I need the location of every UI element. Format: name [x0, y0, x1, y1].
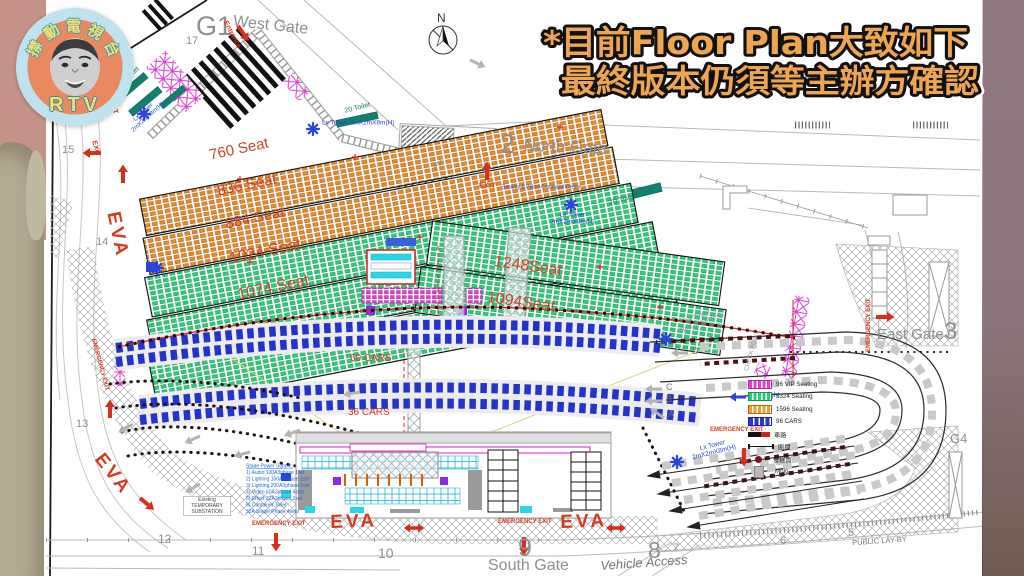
queue-letter-c: C — [666, 383, 673, 392]
legend-swatch-cone — [755, 456, 762, 463]
lx-tower-label-3: Lx Tower2mX2mX8m(H) — [550, 212, 595, 226]
parking-36cars: 36 CARS — [348, 408, 390, 419]
queue-letter-a: A — [668, 410, 674, 419]
logo-char-3: 電 — [66, 15, 81, 36]
tv-screenshot-frame: G1 West Gate 2 North Gate East Gate 3 So… — [0, 0, 1024, 576]
logo-face-image — [45, 35, 105, 99]
parking-60cars: 60 CARS — [350, 354, 392, 365]
road-number-5: 5 — [848, 528, 854, 540]
road-number-7: 7 — [673, 543, 679, 555]
road-number-10: 10 — [378, 546, 394, 561]
command-center-label: Security & Police Command Center — [502, 185, 581, 190]
legend-swatch-orange-seating — [748, 405, 772, 414]
road-number-12: 12 — [158, 533, 171, 546]
legend-row-fence: 圍欄 — [748, 441, 858, 454]
legend-swatch-green-seating — [748, 392, 772, 401]
legend-row-orange: 1596 Seating — [748, 403, 858, 416]
queue-letter-b: B — [666, 395, 672, 404]
legend-swatch-fence — [748, 444, 774, 449]
legend-swatch-mojo — [754, 466, 764, 478]
logo-abbr: RTV — [49, 94, 101, 117]
exit-label-north: EXIT — [479, 182, 496, 190]
emergency-exit-east: EMERGENCY EXIT — [866, 298, 872, 352]
legend-row-cone: 雪糕筒 — [748, 453, 858, 466]
eva-label-bottom-right: EVA — [560, 511, 607, 533]
legend-row-mojo: Mojo — [748, 466, 858, 479]
emergency-exit-bottom-1: EMERGENCY EXIT — [252, 521, 306, 527]
queue-letter-d: D — [692, 347, 699, 356]
substation-note: Existing TEMPORARY SUBSTATION — [183, 496, 231, 516]
stage-power-supply-note: Stage Power Supply: 1) Audio 100A3phase … — [246, 463, 331, 515]
legend-row-cars: 96 CARS — [748, 416, 858, 429]
headline-line2: 最終版本仍須等主辦方確認 — [561, 62, 979, 100]
lx-tower-label-2: Lx Tower 2mX2mX8m(H) — [322, 120, 394, 127]
road-number-9: 9 — [518, 535, 532, 561]
legend-row-green: 5324 Seating — [748, 391, 858, 404]
legend-swatch-vip — [748, 380, 772, 389]
legend-swatch-road — [748, 432, 770, 437]
compass-icon — [429, 26, 457, 54]
gate-g4-label: G4 — [950, 432, 967, 446]
road-number-17: 17 — [186, 36, 198, 48]
gate-north-code: 2 — [500, 130, 515, 158]
road-number-11: 11 — [252, 545, 264, 558]
compass-n-label: N — [437, 12, 446, 25]
legend-swatch-cars — [748, 417, 772, 426]
road-number-15: 15 — [62, 145, 74, 157]
road-number-8: 8 — [648, 538, 661, 562]
headline-overlay: *目前Floor Plan大致如下 最終版本仍須等主辦方確認 *目前Floor … — [468, 6, 1024, 110]
emergency-exit-bottom-2: EMERGENCY EXIT — [498, 519, 552, 525]
legend-row-vip: 96 VIP Seating — [748, 378, 858, 391]
headline-line1: *目前Floor Plan大致如下 — [543, 23, 968, 62]
couch-cushion — [26, 150, 46, 240]
road-number-6: 6 — [780, 536, 786, 548]
gate-east-label: East Gate — [877, 327, 944, 343]
legend-row-road: 車路 — [748, 428, 858, 441]
channel-logo: 㩒 動 電 視 台 RTV — [16, 8, 134, 126]
logo-char-1: 㩒 — [22, 37, 47, 60]
road-number-14: 14 — [96, 237, 108, 249]
road-number-13: 13 — [76, 419, 88, 431]
legend: 96 VIP Seating 5324 Seating 1596 Seating… — [748, 378, 858, 478]
gate-north-label: North Gate — [523, 137, 607, 158]
gate-east-code: 3 — [944, 319, 957, 344]
eva-label-bottom-center: EVA — [330, 511, 377, 533]
